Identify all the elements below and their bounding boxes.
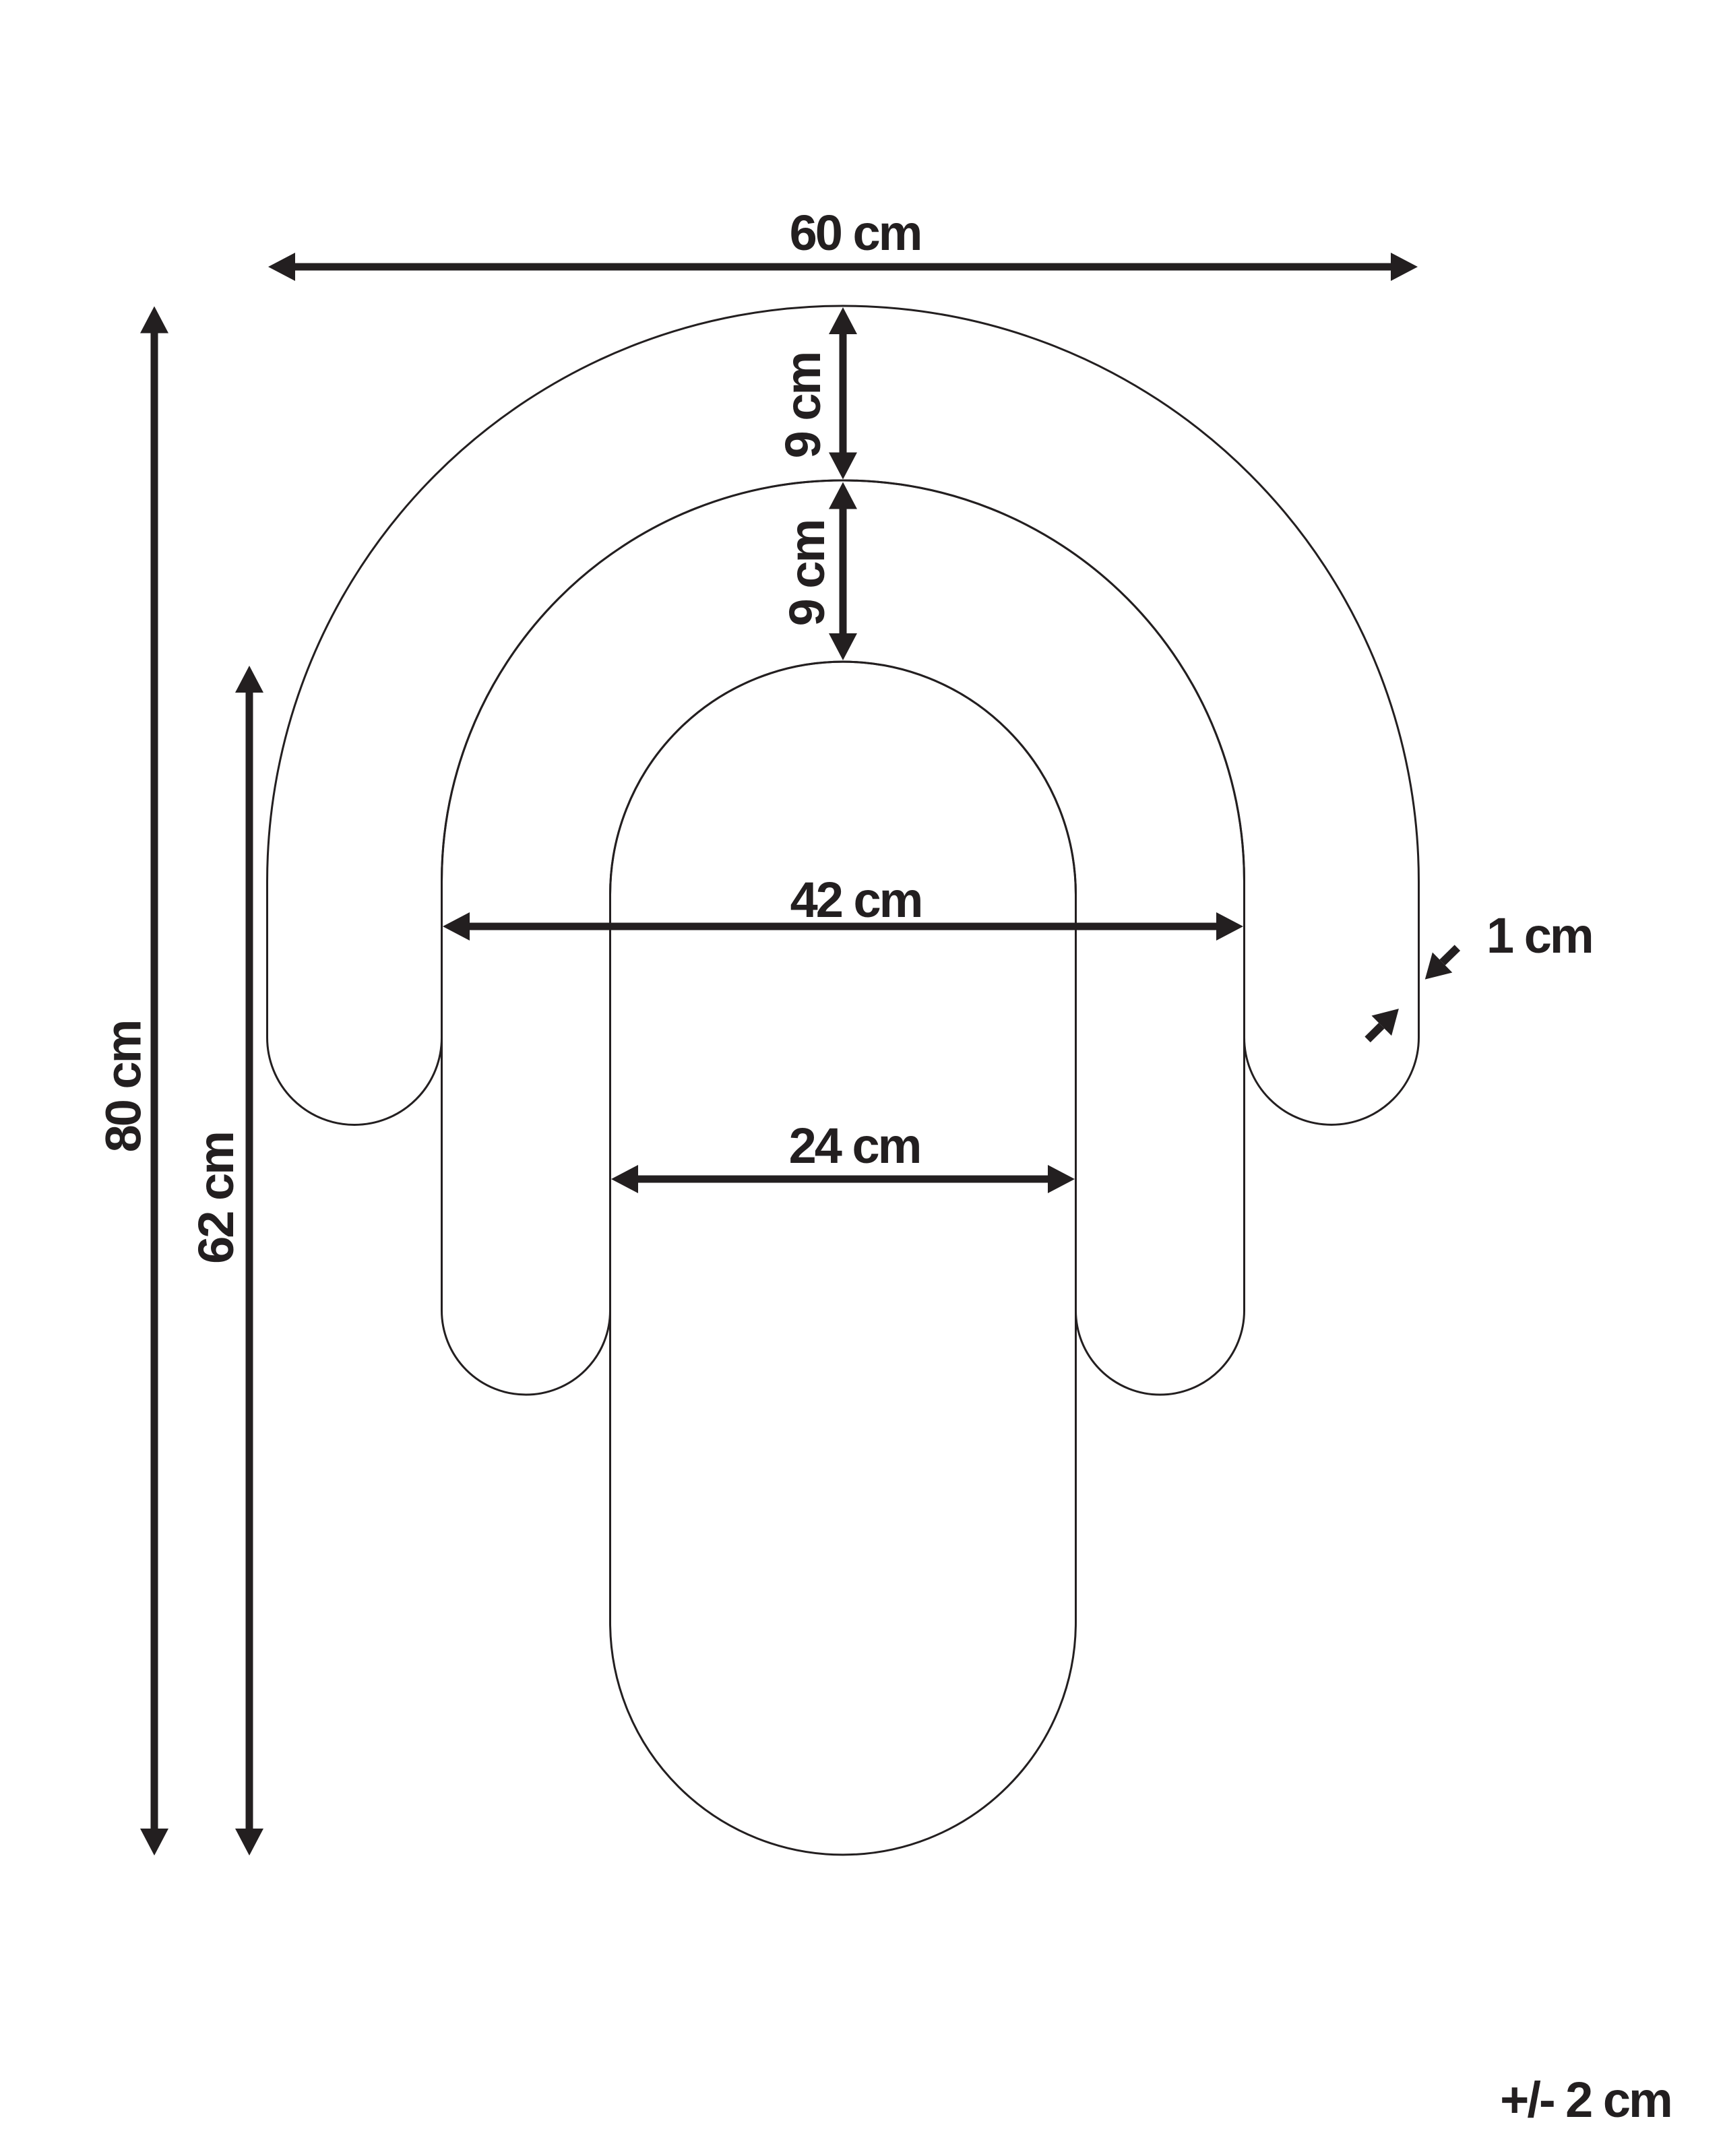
svg-text:60 cm: 60 cm <box>790 205 921 261</box>
svg-text:24 cm: 24 cm <box>789 1118 920 1174</box>
svg-text:9 cm: 9 cm <box>779 521 835 627</box>
svg-text:42 cm: 42 cm <box>790 872 922 928</box>
svg-text:9 cm: 9 cm <box>775 353 831 459</box>
svg-text:62 cm: 62 cm <box>188 1133 244 1264</box>
svg-text:1 cm: 1 cm <box>1486 908 1592 963</box>
svg-text:+/- 2 cm: +/- 2 cm <box>1500 2072 1671 2128</box>
svg-text:80 cm: 80 cm <box>96 1021 152 1153</box>
